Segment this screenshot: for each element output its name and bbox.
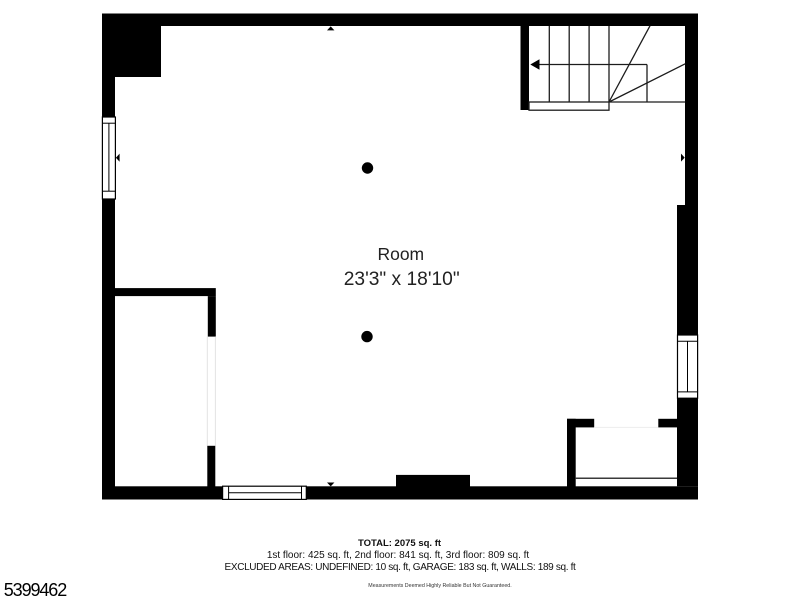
svg-text:23'3" x 18'10": 23'3" x 18'10" — [344, 269, 460, 290]
svg-text:Measurements Deemed Highly Rel: Measurements Deemed Highly Reliable But … — [368, 583, 511, 589]
svg-text:Room: Room — [377, 244, 424, 264]
svg-text:1st floor: 425 sq. ft, 2nd flo: 1st floor: 425 sq. ft, 2nd floor: 841 sq… — [267, 550, 530, 561]
svg-text:EXCLUDED AREAS: UNDEFINED: 10: EXCLUDED AREAS: UNDEFINED: 10 sq. ft, GA… — [225, 562, 576, 573]
svg-text:5399462: 5399462 — [4, 580, 67, 600]
svg-text:TOTAL: 2075 sq. ft: TOTAL: 2075 sq. ft — [358, 538, 442, 549]
